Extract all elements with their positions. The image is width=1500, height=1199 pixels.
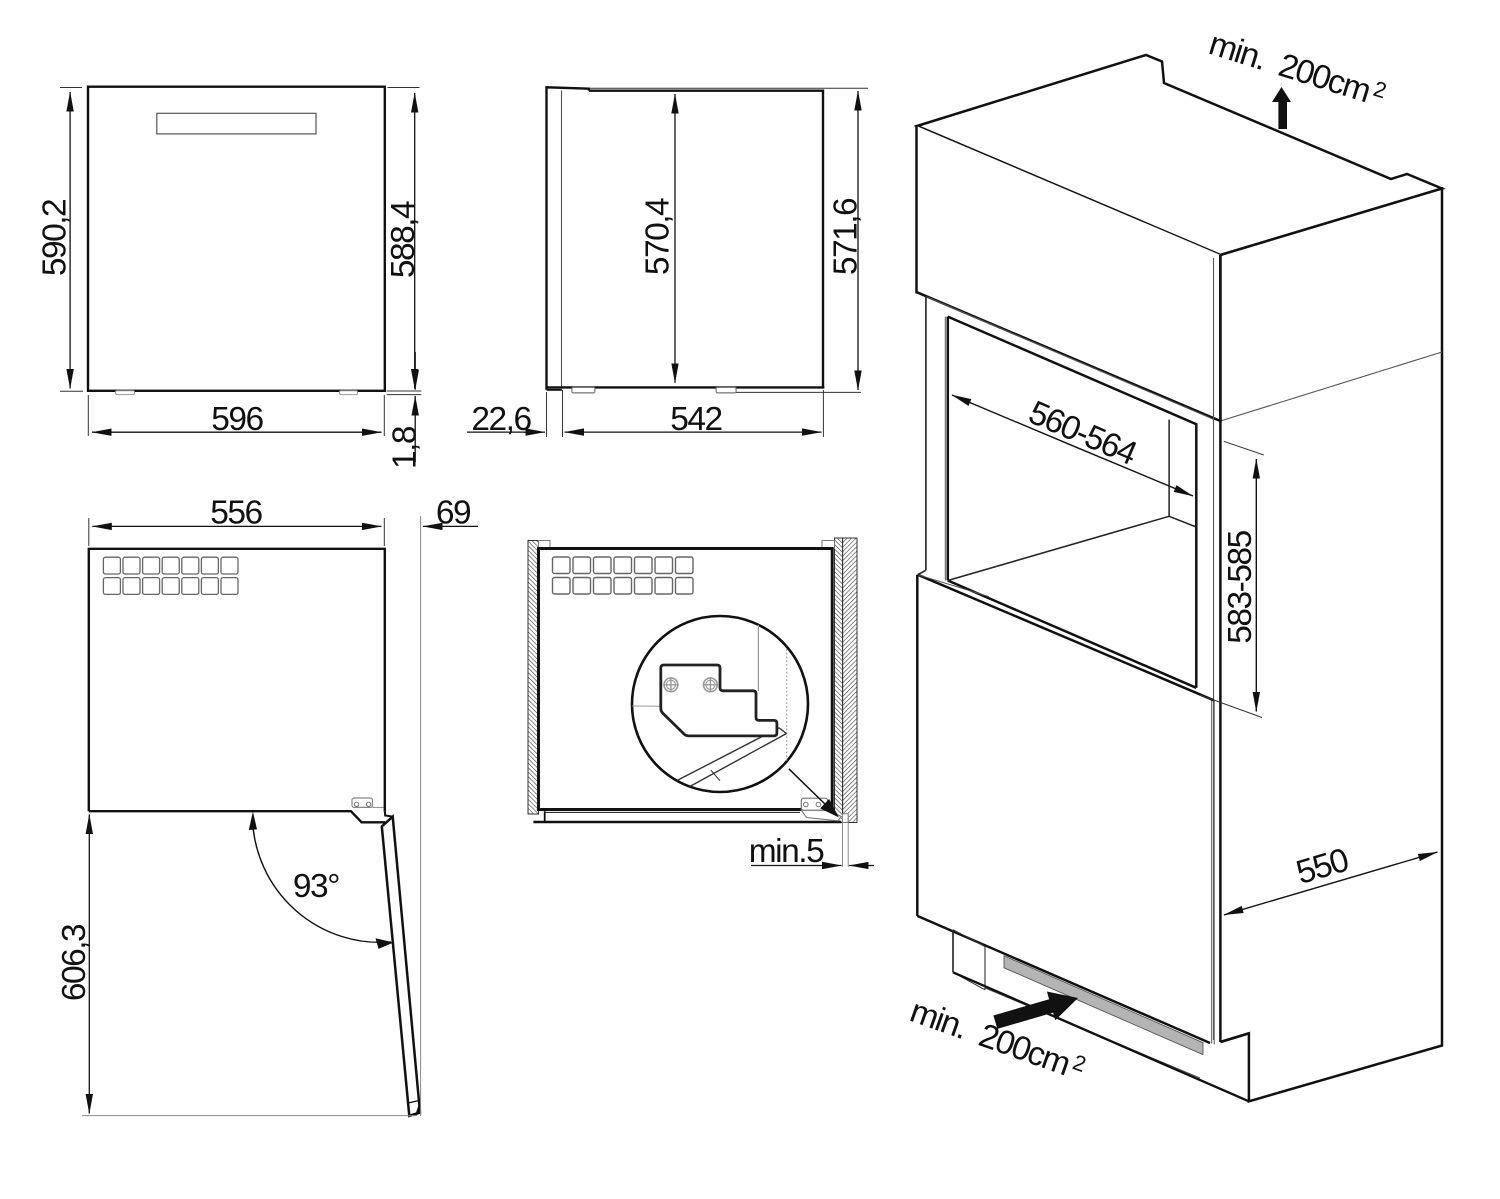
svg-text:590,2: 590,2 — [37, 200, 74, 276]
svg-text:556: 556 — [210, 495, 262, 532]
svg-text:588,4: 588,4 — [385, 201, 422, 278]
svg-text:571,6: 571,6 — [828, 198, 865, 275]
svg-text:1,8: 1,8 — [387, 426, 424, 469]
svg-text:596: 596 — [211, 401, 263, 438]
svg-text:min.5: min.5 — [749, 833, 824, 870]
svg-text:93°: 93° — [293, 868, 339, 905]
svg-text:606,3: 606,3 — [56, 924, 93, 1001]
svg-text:542: 542 — [670, 401, 721, 438]
svg-text:583-585: 583-585 — [1222, 530, 1259, 643]
svg-text:570,4: 570,4 — [640, 198, 677, 275]
